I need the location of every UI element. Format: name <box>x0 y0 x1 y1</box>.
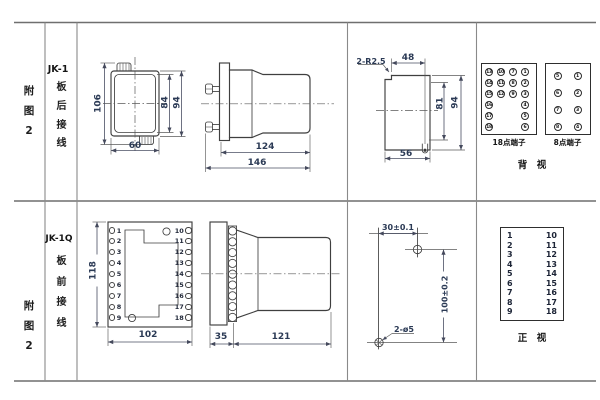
terminal-number: 8 <box>109 303 121 310</box>
terminal-number: 11 <box>172 238 192 245</box>
terminal-number: 13 <box>172 260 192 267</box>
terminal-number: 1 <box>521 68 529 76</box>
terminal-number: 16 <box>546 289 557 297</box>
terminal-number: 3 <box>521 90 529 98</box>
note-2-phi5: 2-ø5 <box>388 324 420 335</box>
dim-81: 81 <box>435 89 446 119</box>
terminal-number: 17 <box>546 299 557 307</box>
terminal-number: 6 <box>109 281 121 288</box>
dim-94-cutout: 94 <box>451 88 462 118</box>
terminal-number: 7 <box>509 68 517 76</box>
terminal-number: 3 <box>574 106 582 114</box>
terminal-number: 14 <box>172 271 192 278</box>
terminal-number: 14 <box>485 79 493 87</box>
terminal-number: 17 <box>172 303 192 310</box>
jk1-panel-cutout <box>358 59 465 163</box>
terminal-number: 18 <box>485 123 493 131</box>
dim-121: 121 <box>266 332 296 343</box>
terminal-table-right-column: 101112131415161718 <box>546 232 557 316</box>
terminal-number: 4 <box>521 101 529 109</box>
terminal-number: 8 <box>554 123 562 131</box>
terminal-number: 7 <box>554 106 562 114</box>
terminal-number: 10 <box>546 232 557 240</box>
terminal-number: 4 <box>507 261 513 269</box>
terminal-number: 5 <box>109 271 121 278</box>
dim-94-case: 94 <box>172 88 183 118</box>
caption-8pt: 8点端子 <box>544 137 591 148</box>
terminal-number: 13 <box>485 68 493 76</box>
terminal-number: 12 <box>497 90 505 98</box>
wiring-label-front: 板前接线 <box>54 252 69 335</box>
model-label-jk1: JK-1 <box>42 64 74 75</box>
dim-48: 48 <box>393 53 423 64</box>
terminal-number: 18 <box>172 314 192 321</box>
terminal-number: 8 <box>509 79 517 87</box>
terminal-number: 1 <box>109 227 121 234</box>
terminal-number: 15 <box>485 90 493 98</box>
terminal-number: 6 <box>521 123 529 131</box>
terminal-number: 1 <box>507 232 513 240</box>
terminal-number: 6 <box>507 280 513 288</box>
front-face-terminals-right: 101112131415161718 <box>172 227 192 321</box>
dim-56: 56 <box>391 149 421 160</box>
terminal-number: 17 <box>485 112 493 120</box>
dim-100-tol: 100±0.2 <box>439 272 450 318</box>
dim-146: 146 <box>242 158 272 169</box>
dim-60: 60 <box>120 141 150 152</box>
terminal-number: 9 <box>109 314 121 321</box>
terminal-number: 18 <box>546 308 557 316</box>
jk1-side-view <box>201 63 334 172</box>
terminal-number: 16 <box>172 292 192 299</box>
figure-label-row1: 附图2 <box>21 81 37 141</box>
caption-front-view: 正 视 <box>500 330 564 344</box>
dim-84: 84 <box>160 88 171 118</box>
terminal-number: 15 <box>172 281 192 288</box>
terminal-number: 5 <box>521 112 529 120</box>
note-2-r2.5: 2-R2.5 <box>353 56 389 67</box>
dim-30-tol: 30±0.1 <box>378 222 418 233</box>
terminal-number: 9 <box>507 308 513 316</box>
terminal-number: 7 <box>109 292 121 299</box>
terminal-number: 5 <box>507 270 513 278</box>
terminal-number: 11 <box>497 79 505 87</box>
terminal-box-8pt: 51627384 <box>545 63 591 135</box>
terminal-number: 3 <box>507 251 513 259</box>
terminal-box-18pt: 131071141182151293164175186 <box>481 63 538 135</box>
terminal-number: 2 <box>109 238 121 245</box>
caption-18pt: 18点端子 <box>479 137 539 148</box>
caption-rear-view: 背 视 <box>496 157 568 171</box>
model-label-jk1q: JK-1Q <box>42 234 76 244</box>
terminal-number: 4 <box>574 123 582 131</box>
terminal-number: 6 <box>554 89 562 97</box>
terminal-number: 1 <box>574 72 582 80</box>
terminal-number: 4 <box>109 260 121 267</box>
terminal-table-left-column: 123456789 <box>507 232 513 316</box>
terminal-number: 2 <box>507 242 513 250</box>
terminal-table-front-view: 123456789 101112131415161718 <box>500 227 564 321</box>
terminal-number: 5 <box>554 72 562 80</box>
dim-106: 106 <box>93 89 104 119</box>
terminal-number: 13 <box>546 261 557 269</box>
front-face-terminals-left: 123456789 <box>109 227 121 321</box>
figure-label-row2: 附图2 <box>21 296 37 356</box>
jk1q-side-view <box>201 222 341 348</box>
terminal-number: 7 <box>507 289 513 297</box>
terminal-number: 16 <box>485 101 493 109</box>
dim-124: 124 <box>250 142 280 153</box>
dim-118: 118 <box>89 255 100 287</box>
terminal-number: 10 <box>497 68 505 76</box>
terminal-number: 8 <box>507 299 513 307</box>
terminal-number: 9 <box>509 90 517 98</box>
terminal-number: 3 <box>109 249 121 256</box>
terminal-number: 12 <box>546 251 557 259</box>
terminal-number: 2 <box>521 79 529 87</box>
wiring-label-rear: 板后接线 <box>54 79 69 154</box>
terminal-number: 14 <box>546 270 557 278</box>
terminal-number: 10 <box>172 227 192 234</box>
terminal-number: 15 <box>546 280 557 288</box>
terminal-number: 11 <box>546 242 557 250</box>
terminal-number: 2 <box>574 89 582 97</box>
terminal-number: 12 <box>172 249 192 256</box>
dim-102: 102 <box>133 330 163 341</box>
manual-page: 附图2 JK-1 板后接线 106 84 94 60 124 146 2-R2.… <box>0 0 600 400</box>
dim-35: 35 <box>206 332 236 343</box>
